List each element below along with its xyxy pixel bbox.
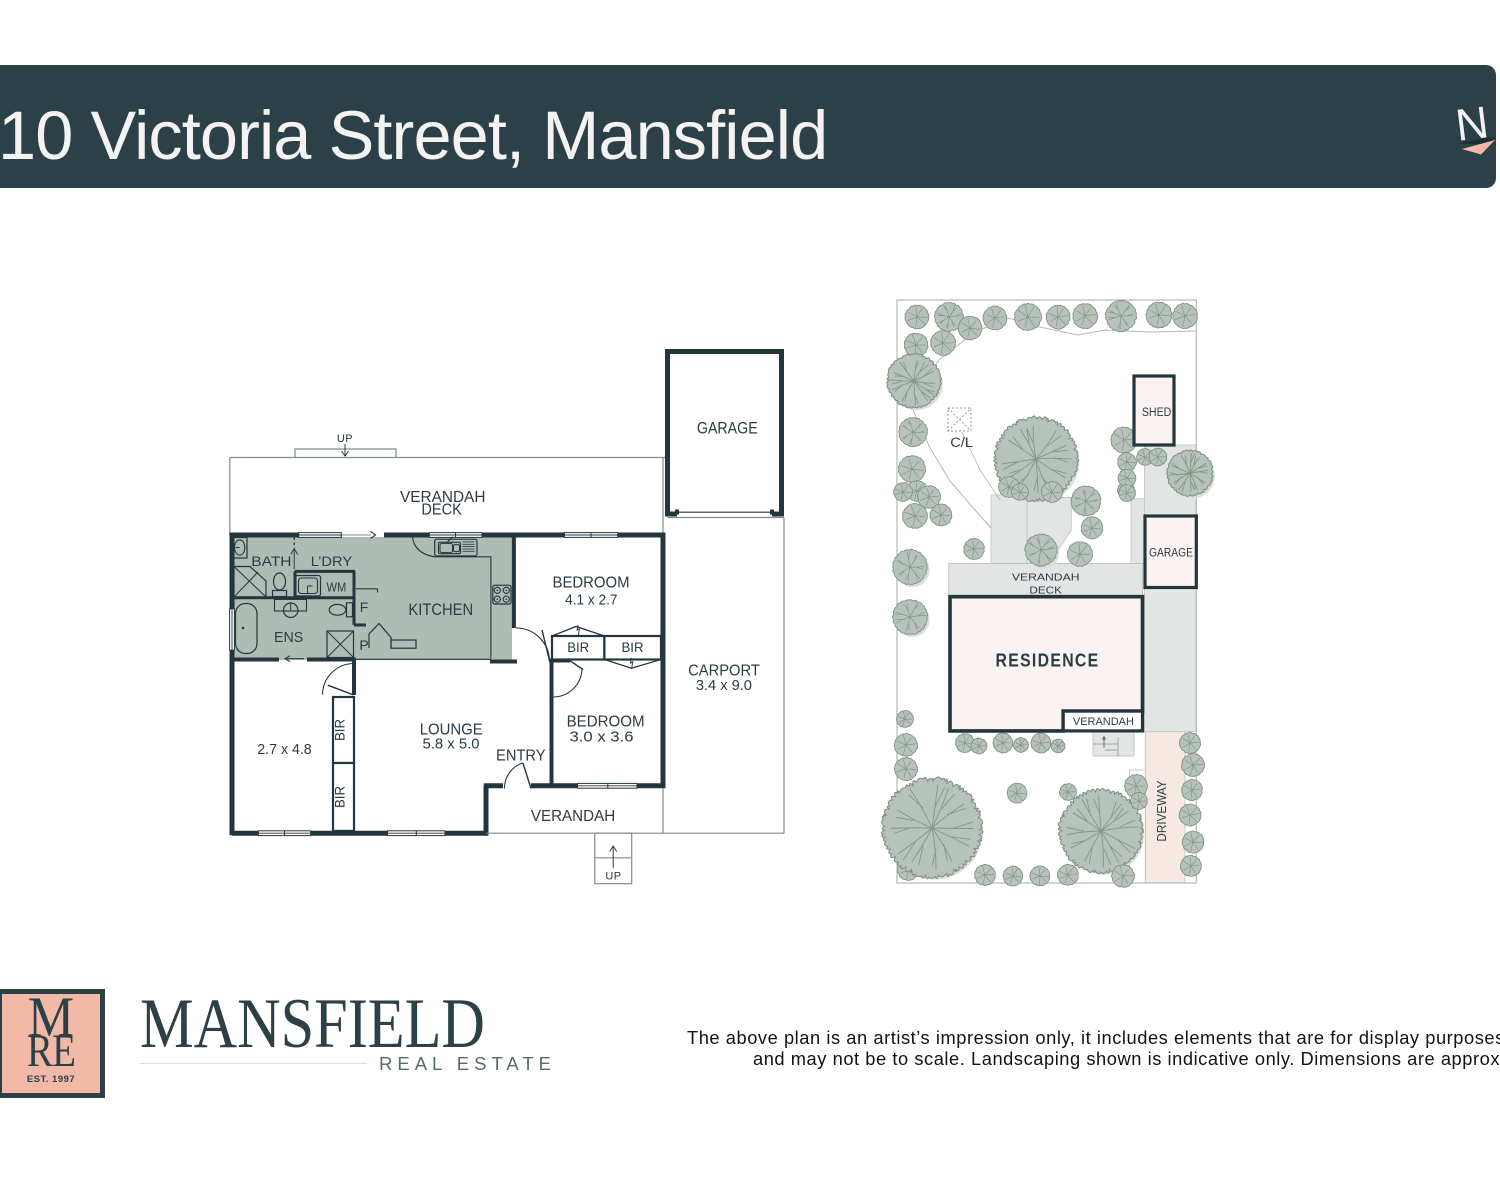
svg-text:F: F xyxy=(360,599,369,615)
svg-text:VERANDAH: VERANDAH xyxy=(531,808,615,825)
svg-text:ENS: ENS xyxy=(274,629,303,646)
svg-text:WM: WM xyxy=(327,579,347,594)
svg-text:RESIDENCE: RESIDENCE xyxy=(996,650,1100,670)
svg-text:DECK: DECK xyxy=(1029,584,1062,596)
svg-text:C/L: C/L xyxy=(950,435,973,450)
svg-text:5.8 x 5.0: 5.8 x 5.0 xyxy=(422,736,479,753)
svg-text:ENTRY: ENTRY xyxy=(496,748,546,765)
svg-text:DECK: DECK xyxy=(421,501,462,518)
svg-text:BIR: BIR xyxy=(333,719,348,741)
svg-text:L’DRY: L’DRY xyxy=(311,554,352,569)
svg-text:KITCHEN: KITCHEN xyxy=(408,600,473,619)
svg-text:UP: UP xyxy=(605,871,621,883)
svg-text:GARAGE: GARAGE xyxy=(697,420,758,438)
svg-text:BATH: BATH xyxy=(251,554,291,569)
svg-text:VERANDAH: VERANDAH xyxy=(1012,572,1080,584)
svg-text:DRIVEWAY: DRIVEWAY xyxy=(1155,780,1169,842)
svg-text:VERANDAH: VERANDAH xyxy=(1073,716,1134,728)
svg-text:BEDROOM: BEDROOM xyxy=(553,575,630,592)
svg-text:3.0 x 3.6: 3.0 x 3.6 xyxy=(570,729,634,746)
svg-text:3.4 x 9.0: 3.4 x 9.0 xyxy=(696,677,752,694)
svg-text:BIR: BIR xyxy=(567,640,589,655)
svg-text:GARAGE: GARAGE xyxy=(1149,548,1193,560)
svg-text:UP: UP xyxy=(337,433,353,445)
svg-text:4.1 x 2.7: 4.1 x 2.7 xyxy=(565,592,617,609)
svg-text:2.7 x 4.8: 2.7 x 4.8 xyxy=(257,741,311,758)
svg-text:BIR: BIR xyxy=(333,786,348,808)
svg-text:P: P xyxy=(359,637,368,653)
svg-text:SHED: SHED xyxy=(1142,407,1172,419)
svg-text:BIR: BIR xyxy=(622,640,644,655)
